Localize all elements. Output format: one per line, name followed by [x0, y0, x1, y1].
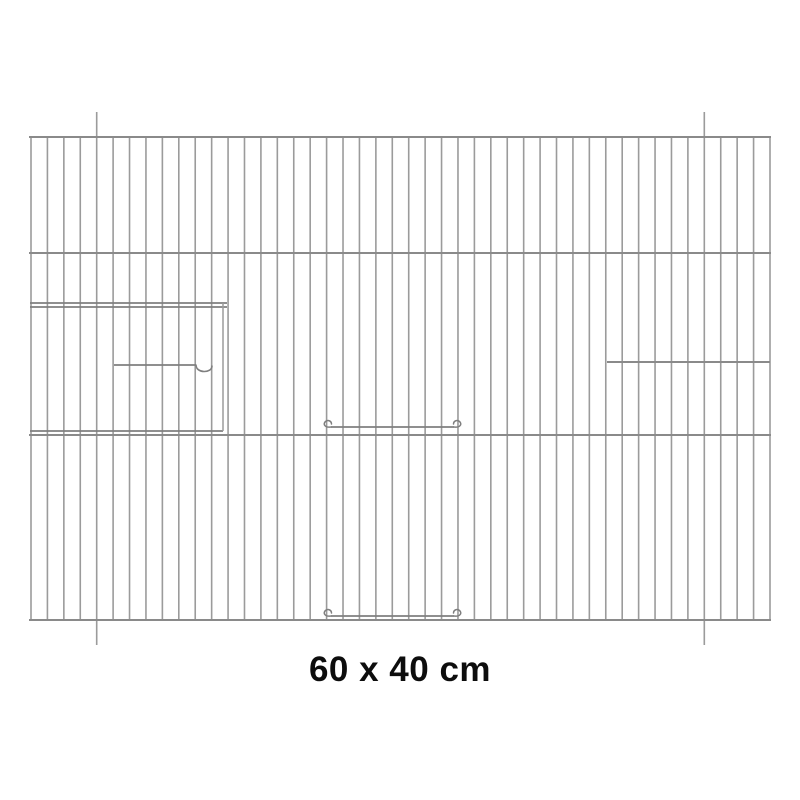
left-door [30, 303, 227, 431]
protruding-wires [97, 112, 705, 645]
wire-grid [31, 137, 770, 620]
crossbars [29, 137, 771, 620]
product-image: 60 x 40 cm [0, 0, 800, 800]
dimension-label: 60 x 40 cm [0, 650, 800, 690]
